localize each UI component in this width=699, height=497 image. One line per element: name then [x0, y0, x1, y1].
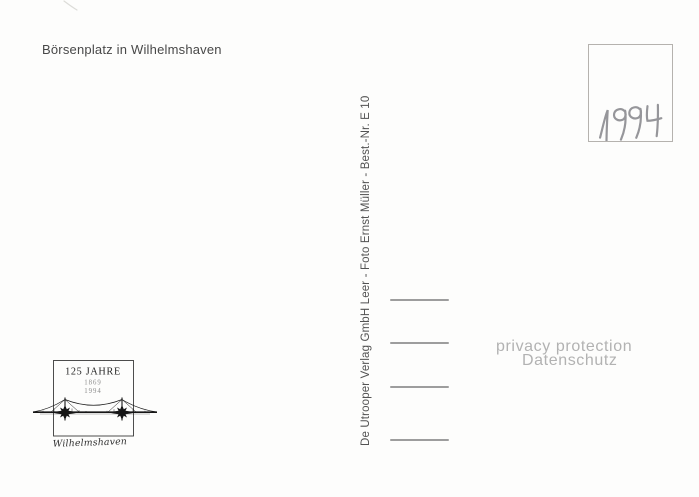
star-burst-icon: [51, 405, 79, 420]
scratch-mark: [58, 0, 88, 14]
address-line: [390, 342, 449, 344]
wilhelmshaven-signature: Wilhelmshaven: [53, 436, 128, 450]
logo-title: 125 JAHRE: [65, 367, 121, 378]
postcard-back: Börsenplatz in Wilhelmshaven De Utrooper…: [0, 0, 699, 497]
stamp-box: [588, 44, 673, 142]
handwritten-year-1994: [592, 101, 670, 141]
bridge-drawing-icon: [33, 398, 157, 421]
address-line: [390, 386, 449, 388]
address-line: [390, 299, 449, 301]
logo-anniversary-year: 1994: [84, 388, 102, 395]
privacy-watermark-line2: Datenschutz: [522, 354, 632, 368]
publisher-imprint: De Utrooper Verlag GmbH Leer - Foto Erns…: [359, 96, 373, 446]
star-burst-icon: [108, 405, 136, 420]
privacy-watermark: privacy protection Datenschutz: [496, 340, 632, 367]
address-line: [390, 439, 449, 441]
postcard-caption: Börsenplatz in Wilhelmshaven: [42, 42, 222, 57]
anniversary-logo: 125 JAHRE 1869 1994 Wilhelmshaven: [28, 352, 164, 460]
logo-founding-year: 1869: [84, 380, 102, 387]
